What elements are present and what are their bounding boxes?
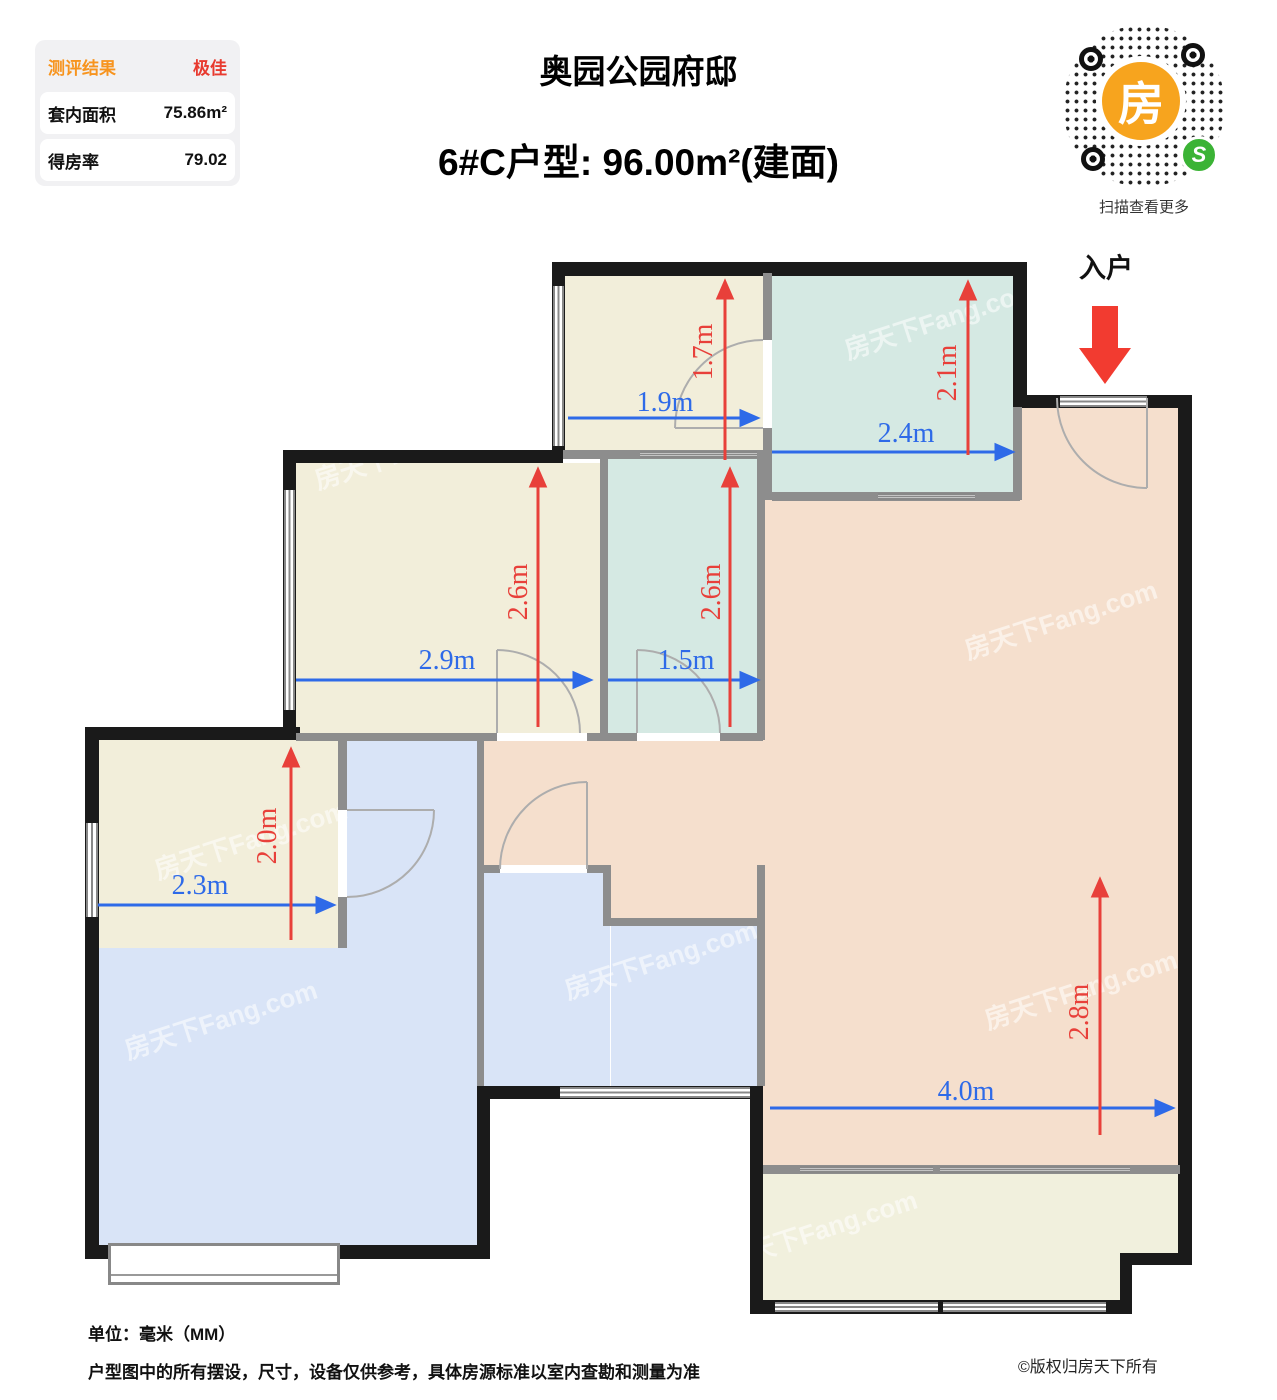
dim-label: 2.8m: [1064, 984, 1096, 1041]
dim-label: 1.5m: [658, 645, 715, 677]
wall: [1178, 395, 1192, 1265]
wall: [750, 1086, 763, 1314]
wall: [1013, 407, 1022, 500]
door-opening: [497, 733, 587, 741]
wall: [477, 1086, 490, 1259]
wall: [603, 918, 765, 926]
wall: [85, 727, 300, 740]
window: [284, 490, 295, 710]
balcony-door-window: [940, 1166, 1130, 1173]
wall: [603, 865, 611, 926]
window: [943, 1302, 1106, 1312]
room-bathroom-mid: [608, 459, 757, 733]
door-opening: [500, 865, 587, 873]
room-bedroom-small: [611, 926, 757, 1086]
dim-label: 1.9m: [637, 387, 694, 419]
dim-label: 2.6m: [503, 564, 535, 621]
door-opening: [763, 340, 772, 428]
wall: [336, 1245, 490, 1259]
hallway-notch: [611, 872, 757, 918]
wall: [85, 727, 99, 1259]
entrance-arrow-icon: [1092, 306, 1118, 348]
window: [553, 286, 564, 446]
balcony: [763, 1253, 1120, 1300]
floorplan: 房天下Fang.com 房天下Fang.com 房天下Fang.com 房天下F…: [0, 0, 1277, 1400]
hallway: [484, 741, 763, 872]
dim-label: 1.7m: [688, 324, 720, 381]
room-master-bedroom: [99, 948, 477, 1245]
room-kitchen: [565, 276, 763, 458]
floorplan-page: { "header": { "score_panel": { "result_l…: [0, 0, 1277, 1400]
dim-label: 2.6m: [696, 564, 728, 621]
bay-window: [108, 1243, 340, 1285]
wall: [283, 450, 563, 463]
door-opening: [338, 810, 347, 897]
balcony-door-window: [800, 1166, 933, 1173]
dim-label: 2.9m: [419, 645, 476, 677]
entry-hall: [1022, 408, 1178, 500]
room-study: [99, 740, 338, 948]
window: [640, 451, 757, 458]
room-bathroom-top: [772, 276, 1013, 493]
dim-label: 2.4m: [878, 418, 935, 450]
window: [775, 1302, 938, 1312]
wall: [552, 262, 1027, 276]
room-master-bedroom: [347, 741, 477, 948]
copyright: ©版权归房天下所有: [1018, 1353, 1158, 1377]
dim-label: 2.1m: [932, 345, 964, 402]
sliding-door: [878, 493, 975, 500]
unit-note: 单位：毫米（MM）: [88, 1320, 235, 1345]
wall: [1013, 262, 1027, 408]
wall: [477, 740, 484, 1086]
entrance-arrow-icon: [1079, 348, 1131, 384]
balcony: [763, 1173, 1178, 1253]
entry-door-opening: [1060, 396, 1147, 407]
wall: [757, 865, 765, 1086]
dim-label: 4.0m: [938, 1076, 995, 1108]
dim-label: 2.0m: [252, 808, 284, 865]
disclaimer: 户型图中的所有摆设，尺寸，设备仅供参考，具体房源标准以室内查勘和测量为准: [88, 1358, 700, 1383]
wall: [600, 458, 608, 736]
window: [560, 1087, 750, 1098]
dim-label: 2.3m: [172, 870, 229, 902]
window: [86, 823, 98, 917]
living-dining: [763, 500, 1178, 1165]
door-opening: [637, 733, 720, 741]
room-bedroom-left: [296, 463, 600, 733]
entrance-label: 入户: [1079, 247, 1133, 286]
wall: [757, 458, 765, 740]
room-bedroom-small: [484, 873, 610, 1086]
